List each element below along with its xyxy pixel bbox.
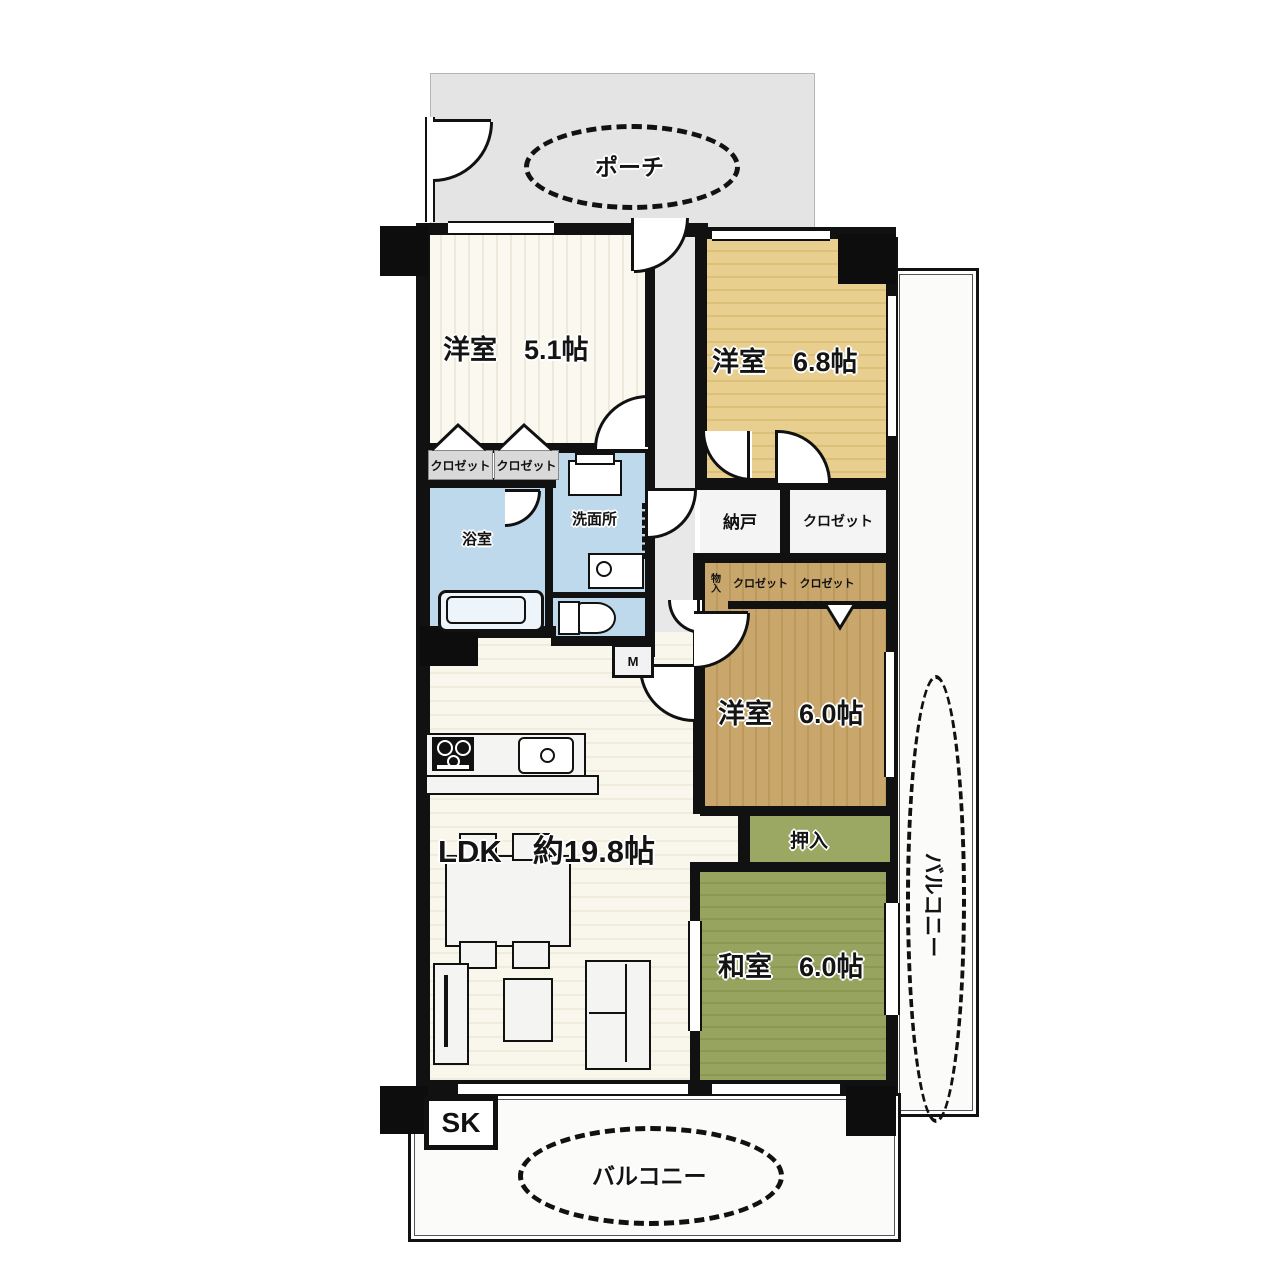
sofa <box>585 960 651 1070</box>
balcony-bottom-label: バルコニー <box>592 1157 707 1191</box>
toilet-bowl <box>578 602 616 634</box>
ldk-label: LDK 約19.8帖 <box>438 826 655 871</box>
sk-label: SK <box>442 1107 481 1139</box>
tv-panel <box>444 975 448 1047</box>
wash-door-leaf <box>648 488 695 491</box>
window-washitsu-bottom <box>712 1082 840 1096</box>
pillar-top-left <box>380 226 428 276</box>
closet-small-1-box: クロゼット <box>733 563 788 603</box>
sofa-back <box>625 964 627 1062</box>
balcony-right-label: バルコニー <box>919 849 949 961</box>
meter-label: M <box>628 654 639 669</box>
bathtub-inner <box>446 596 526 624</box>
floor-plan: ポーチ バルコニー バルコニー <box>0 0 1280 1280</box>
kitchen-base <box>425 775 599 795</box>
meter-box: M <box>612 644 654 678</box>
nando-label: 納戸 <box>723 508 757 533</box>
oshiire-label: 押入 <box>790 826 828 853</box>
bathroom-label: 浴室 <box>462 528 492 549</box>
room-6-0-door-leaf <box>694 611 748 614</box>
wall-nando-closet <box>780 488 790 556</box>
room-5-1-label: 洋室 5.1帖 <box>443 328 589 367</box>
window-washitsu-right <box>884 903 900 1015</box>
monoire-box: 物入 <box>700 563 728 603</box>
window-ldk-bottom <box>458 1082 688 1096</box>
wall-m-top <box>598 636 654 644</box>
nando-box: 納戸 <box>700 488 780 553</box>
washing-machine-band <box>575 453 615 465</box>
hallway-floor <box>648 233 695 657</box>
bath-door-leaf <box>505 489 540 492</box>
wall-ldk-right <box>693 657 703 817</box>
wall-oshiire-left <box>738 808 750 866</box>
pillar-bottom-right <box>846 1086 896 1136</box>
window-68-top <box>712 229 830 241</box>
washing-machine <box>568 460 622 496</box>
washroom-label: 洗面所 <box>572 508 617 529</box>
stove-burner-1 <box>437 740 453 756</box>
porch-door-leaf <box>433 119 491 122</box>
room-6-8-label: 洋室 6.8帖 <box>712 340 858 379</box>
window-68-right <box>886 296 898 436</box>
wall-60-bottom <box>700 806 896 816</box>
closet-chip-1-label: クロゼット <box>430 457 490 474</box>
window-51-top <box>448 221 554 235</box>
closet-small-1-label: クロゼット <box>733 575 788 591</box>
closet-chip-2-label: クロゼット <box>496 457 556 474</box>
washitsu-label: 和室 6.0帖 <box>718 945 864 984</box>
toilet-tank <box>558 601 580 635</box>
window-washitsu-left-slider <box>688 921 702 1031</box>
washroom-slider <box>642 503 645 559</box>
pillar-ldk-corner <box>420 626 478 666</box>
hall-door-leaf <box>747 431 750 479</box>
sofa-split <box>589 1012 625 1014</box>
coffee-table <box>503 978 553 1042</box>
closet-chip-1: クロゼット <box>428 450 493 480</box>
tv-board <box>433 963 469 1065</box>
wall-wash-toilet <box>551 592 649 598</box>
room-6-0-label: 洋室 6.0帖 <box>718 692 864 731</box>
pillar-68-corner <box>838 234 896 284</box>
closet-big-label: クロゼット <box>803 511 873 531</box>
sk-box: SK <box>424 1096 498 1150</box>
wall-closet-row-bottom <box>695 553 896 563</box>
wash-sink-bowl <box>596 561 612 577</box>
dining-chair-4 <box>512 941 550 969</box>
window-60-right <box>884 652 896 777</box>
stove-burner-2 <box>455 740 471 756</box>
pillar-bottom-left <box>380 1086 428 1134</box>
closet-chip-2: クロゼット <box>494 450 559 480</box>
stove-grill <box>437 765 469 769</box>
entrance-door-leaf <box>631 218 634 271</box>
monoire-label: 物入 <box>707 573 722 593</box>
closet-small-2-box: クロゼット <box>798 563 856 603</box>
kitchen-faucet <box>540 748 555 763</box>
porch-label: ポーチ <box>595 148 664 182</box>
closet-small-2-label: クロゼット <box>800 575 855 591</box>
room-5-1-door-leaf <box>645 395 648 447</box>
wall-oshiire-bottom <box>700 862 896 872</box>
closet-big-box: クロゼット <box>790 488 886 553</box>
room-6-8-door-leaf <box>775 430 778 480</box>
